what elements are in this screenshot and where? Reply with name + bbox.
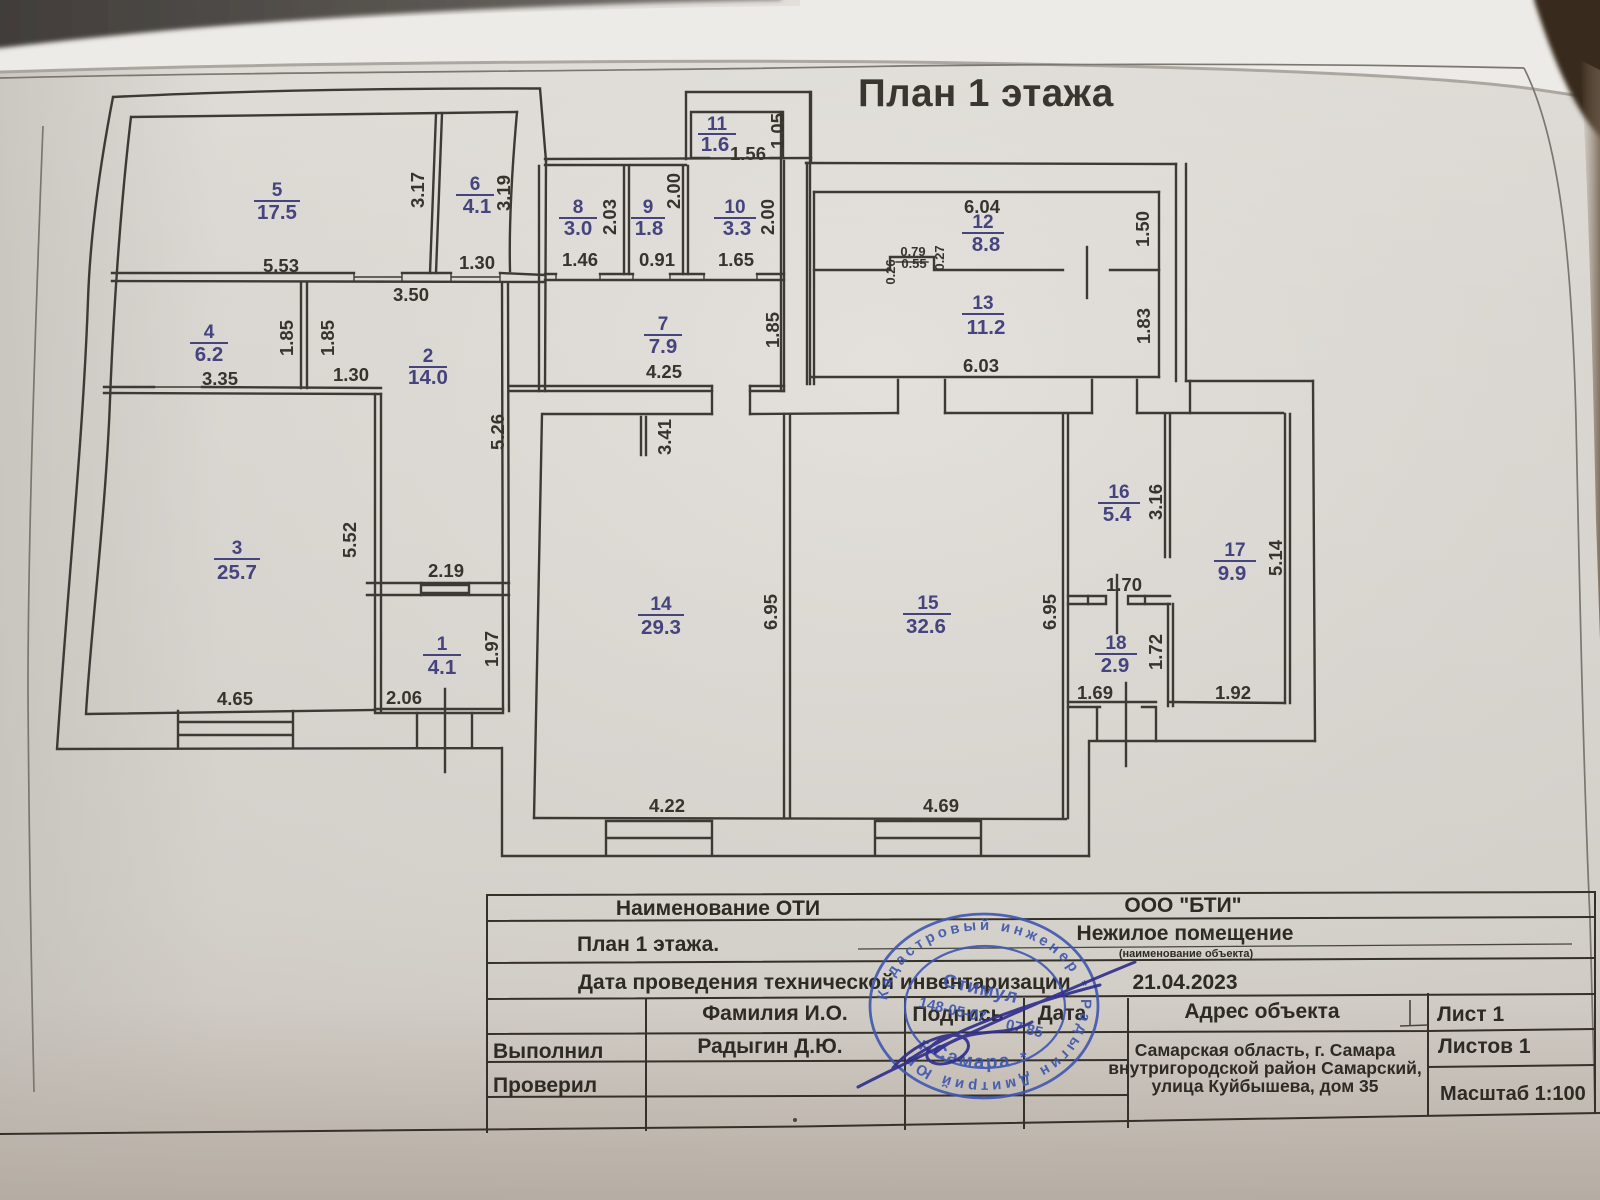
svg-text:Масштаб 1:100: Масштаб 1:100: [1440, 1083, 1586, 1105]
svg-text:3.16: 3.16: [1145, 484, 1166, 520]
svg-text:1.72: 1.72: [1145, 634, 1166, 670]
svg-text:15: 15: [917, 593, 939, 614]
svg-text:0.55: 0.55: [901, 256, 926, 271]
svg-text:Самарская область, г. Самара: Самарская область, г. Самара: [1135, 1040, 1396, 1060]
svg-text:1.92: 1.92: [1215, 682, 1251, 703]
svg-text:1.46: 1.46: [562, 249, 598, 270]
svg-text:1.30: 1.30: [459, 252, 495, 273]
svg-text:3.0: 3.0: [564, 217, 593, 240]
svg-text:Адрес объекта: Адрес объекта: [1184, 1000, 1340, 1023]
svg-text:8.8: 8.8: [972, 233, 1001, 256]
svg-text:внутригородской район Самарски: внутригородской район Самарский,: [1108, 1058, 1422, 1078]
svg-text:4.22: 4.22: [649, 795, 685, 816]
svg-text:9: 9: [643, 197, 654, 218]
svg-text:1.85: 1.85: [762, 312, 783, 348]
svg-text:25.7: 25.7: [217, 561, 257, 584]
svg-text:6.95: 6.95: [760, 594, 781, 630]
svg-text:6.2: 6.2: [195, 343, 224, 366]
svg-text:4.1: 4.1: [428, 656, 457, 679]
svg-text:2: 2: [423, 346, 434, 367]
svg-text:5.53: 5.53: [263, 255, 299, 276]
svg-text:9.9: 9.9: [1218, 562, 1247, 585]
svg-text:7.9: 7.9: [649, 335, 678, 358]
svg-text:5: 5: [272, 180, 283, 201]
svg-text:3.19: 3.19: [493, 175, 514, 211]
svg-text:14: 14: [650, 594, 672, 615]
svg-text:1.05: 1.05: [767, 113, 788, 149]
svg-text:2.19: 2.19: [428, 560, 464, 581]
svg-text:0.27: 0.27: [932, 245, 947, 270]
svg-text:2.00: 2.00: [757, 199, 778, 235]
svg-text:5.4: 5.4: [1103, 503, 1132, 526]
svg-text:16: 16: [1108, 482, 1129, 503]
svg-text:5.52: 5.52: [339, 522, 360, 558]
svg-text:1.85: 1.85: [317, 320, 338, 356]
svg-text:4.25: 4.25: [646, 361, 682, 382]
svg-text:17: 17: [1224, 540, 1245, 561]
svg-text:5.26: 5.26: [487, 414, 508, 450]
svg-text:11.2: 11.2: [967, 316, 1006, 339]
svg-text:4.65: 4.65: [217, 688, 253, 709]
svg-text:3.50: 3.50: [393, 284, 429, 305]
svg-text:8: 8: [573, 197, 584, 218]
svg-text:1.69: 1.69: [1077, 682, 1113, 703]
svg-text:улица Куйбышева, дом 35: улица Куйбышева, дом 35: [1151, 1076, 1378, 1096]
svg-text:0.91: 0.91: [639, 249, 675, 270]
svg-text:10: 10: [724, 197, 745, 218]
svg-text:1.30: 1.30: [333, 364, 369, 385]
svg-text:11: 11: [707, 114, 728, 135]
svg-text:*: *: [1020, 1048, 1027, 1067]
svg-text:1.56: 1.56: [730, 143, 766, 164]
svg-text:ООО "БТИ": ООО "БТИ": [1124, 894, 1241, 917]
svg-text:2.9: 2.9: [1101, 654, 1130, 677]
svg-text:1.85: 1.85: [276, 320, 297, 356]
svg-text:1.70: 1.70: [1106, 574, 1142, 595]
svg-text:7: 7: [658, 314, 669, 335]
svg-text:План 1 этажа.: План 1 этажа.: [577, 933, 719, 956]
svg-text:21.04.2023: 21.04.2023: [1132, 971, 1237, 994]
svg-text:Выполнил: Выполнил: [493, 1040, 603, 1063]
svg-text:14.0: 14.0: [408, 366, 448, 389]
svg-text:17.5: 17.5: [257, 201, 297, 224]
svg-text:1.50: 1.50: [1132, 211, 1153, 247]
svg-text:(наименование объекта): (наименование объекта): [1119, 948, 1254, 960]
svg-text:13: 13: [972, 293, 993, 314]
svg-text:29.3: 29.3: [641, 616, 681, 639]
svg-text:4.69: 4.69: [923, 795, 959, 816]
svg-text:План 1 этажа: План 1 этажа: [858, 72, 1114, 115]
svg-text:6.03: 6.03: [963, 355, 999, 376]
svg-text:4: 4: [204, 322, 215, 343]
svg-text:3.17: 3.17: [407, 172, 428, 208]
svg-text:Листов 1: Листов 1: [1438, 1035, 1531, 1058]
svg-text:0.26: 0.26: [883, 259, 898, 284]
svg-text:2.03: 2.03: [599, 199, 620, 235]
svg-text:4.1: 4.1: [463, 195, 492, 218]
svg-text:1.8: 1.8: [635, 217, 664, 240]
svg-text:32.6: 32.6: [906, 615, 946, 638]
svg-text:1.6: 1.6: [701, 133, 730, 156]
svg-text:3.35: 3.35: [202, 368, 238, 389]
svg-text:2.06: 2.06: [386, 687, 422, 708]
svg-text:1: 1: [437, 634, 448, 655]
svg-text:5.14: 5.14: [1265, 539, 1286, 576]
svg-text:Фамилия И.О.: Фамилия И.О.: [702, 1002, 847, 1025]
svg-text:2.00: 2.00: [663, 173, 684, 209]
svg-text:Нежилое помещение: Нежилое помещение: [1077, 922, 1294, 945]
svg-text:1.97: 1.97: [481, 631, 502, 667]
svg-text:18: 18: [1105, 633, 1126, 654]
svg-text:1.83: 1.83: [1133, 308, 1154, 344]
svg-text:6.95: 6.95: [1039, 594, 1060, 630]
svg-text:3.41: 3.41: [654, 419, 675, 455]
svg-text:Лист 1: Лист 1: [1437, 1003, 1504, 1026]
svg-text:Проверил: Проверил: [493, 1074, 597, 1097]
svg-text:Наименование ОТИ: Наименование ОТИ: [616, 897, 820, 920]
svg-text:3.3: 3.3: [723, 217, 752, 240]
svg-text:6.04: 6.04: [964, 196, 1001, 217]
svg-text:3: 3: [232, 538, 243, 559]
svg-text:6: 6: [470, 174, 481, 195]
svg-text:Радыгин Д.Ю.: Радыгин Д.Ю.: [697, 1035, 842, 1058]
svg-text:1.65: 1.65: [718, 249, 754, 270]
